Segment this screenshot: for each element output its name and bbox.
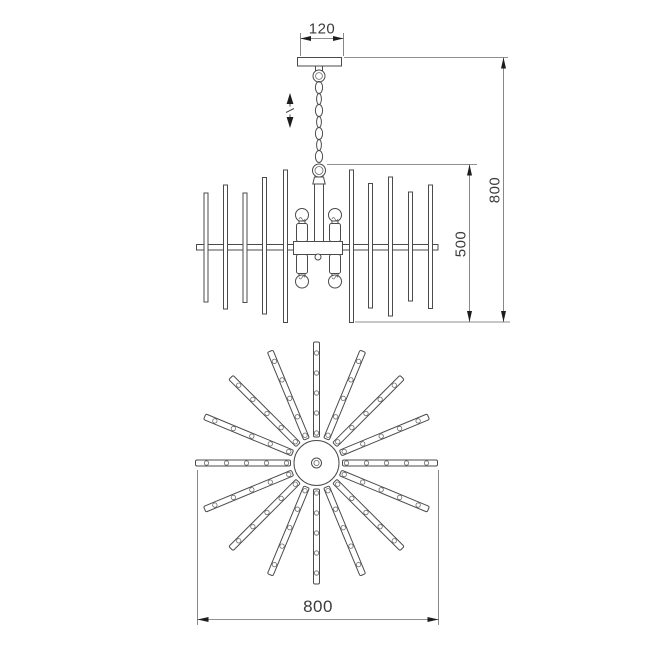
arrowhead xyxy=(198,617,209,622)
candle xyxy=(330,255,341,274)
rod xyxy=(389,177,393,316)
dim-label-canopy-width: 120 xyxy=(309,21,336,38)
radial-arm xyxy=(343,460,438,466)
chain-link xyxy=(315,105,322,117)
candle xyxy=(297,255,308,274)
candle-lamp-up-right xyxy=(329,209,342,242)
radial-arm xyxy=(267,486,309,576)
technical-drawing: 120 800 500 xyxy=(0,0,650,650)
dimension-overall-height: 800 xyxy=(487,58,507,323)
candle-lamp-up-left xyxy=(296,209,309,242)
chain-link xyxy=(315,82,322,94)
chain-link xyxy=(317,94,322,105)
radial-arm xyxy=(333,479,404,550)
chain-link xyxy=(317,117,322,128)
hub-finial xyxy=(315,254,321,260)
dimension-body-height: 500 xyxy=(453,165,473,323)
ceiling-plate xyxy=(298,58,342,71)
radial-arm xyxy=(324,486,366,576)
arrowhead xyxy=(467,311,472,322)
dim-label-diameter: 800 xyxy=(303,597,333,616)
radial-arm xyxy=(314,489,320,584)
rod xyxy=(369,184,373,309)
dimension-canopy-width: 120 xyxy=(301,21,344,57)
rod xyxy=(204,193,208,302)
candle xyxy=(330,224,341,242)
hanging-chain xyxy=(313,70,326,177)
rod xyxy=(350,170,354,323)
chain-ring-top xyxy=(313,70,325,82)
arrowhead xyxy=(467,165,472,176)
drawing-canvas: 120 800 500 xyxy=(0,0,650,650)
chain-link xyxy=(315,151,322,163)
arrowhead xyxy=(501,58,506,69)
chain-ring-bottom xyxy=(313,164,326,177)
radial-arm xyxy=(267,350,309,440)
rod xyxy=(429,185,433,309)
radial-arm xyxy=(333,375,404,446)
rod xyxy=(224,185,228,309)
rod xyxy=(243,193,247,303)
candle-lamp-down-right xyxy=(329,255,342,289)
chain-link xyxy=(317,140,322,151)
plan-view: 800 xyxy=(196,342,439,625)
chain-link xyxy=(315,128,322,140)
arrowhead xyxy=(428,617,439,622)
height-adjust-icon xyxy=(286,93,294,128)
dim-label-overall-height: 800 xyxy=(487,177,504,204)
candle xyxy=(297,224,308,242)
front-view: 120 800 500 xyxy=(197,21,511,323)
arrowhead xyxy=(501,311,506,322)
radial-arm xyxy=(314,342,320,437)
radial-arm xyxy=(204,470,294,512)
radial-arm xyxy=(324,350,366,440)
rod xyxy=(263,178,267,315)
dim-label-body-height: 500 xyxy=(453,231,470,258)
radial-arm xyxy=(229,375,300,446)
center-disk xyxy=(294,441,339,486)
rod xyxy=(409,192,413,301)
radial-arm xyxy=(196,460,291,466)
stem xyxy=(313,177,325,243)
radial-arm xyxy=(229,479,300,550)
radial-arm xyxy=(339,470,429,512)
radial-arm xyxy=(339,414,429,456)
rod xyxy=(284,170,288,323)
radial-arm xyxy=(204,414,294,456)
candle-lamp-down-left xyxy=(296,255,309,289)
